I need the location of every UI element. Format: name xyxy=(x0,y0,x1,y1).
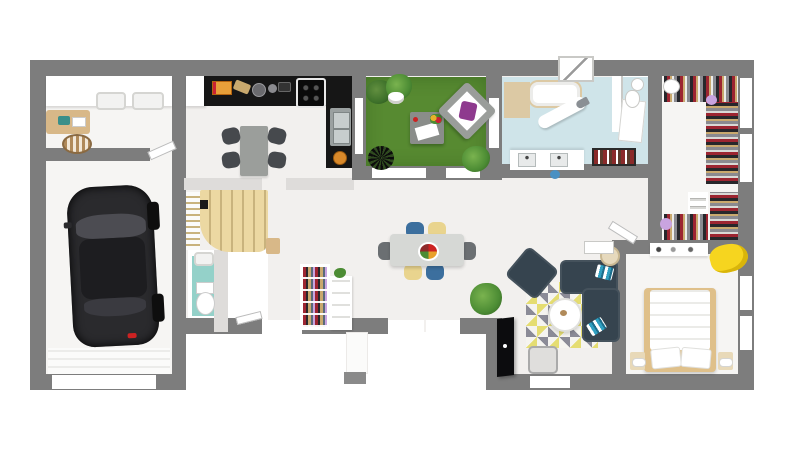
entry-walkway xyxy=(346,332,368,374)
entry-step xyxy=(344,372,366,384)
entry xyxy=(0,0,800,450)
floor-plan-render xyxy=(0,0,800,450)
